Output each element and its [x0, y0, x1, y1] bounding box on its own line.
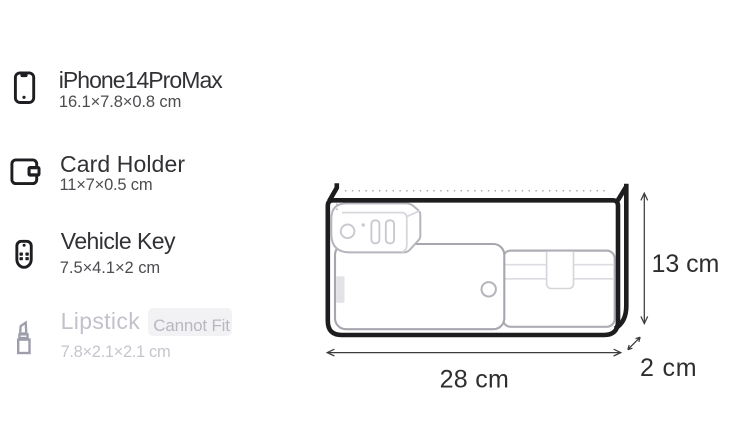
svg-text:28 cm: 28 cm — [440, 366, 510, 394]
svg-text:13 cm: 13 cm — [652, 250, 720, 278]
svg-text:2 cm: 2 cm — [640, 354, 697, 382]
